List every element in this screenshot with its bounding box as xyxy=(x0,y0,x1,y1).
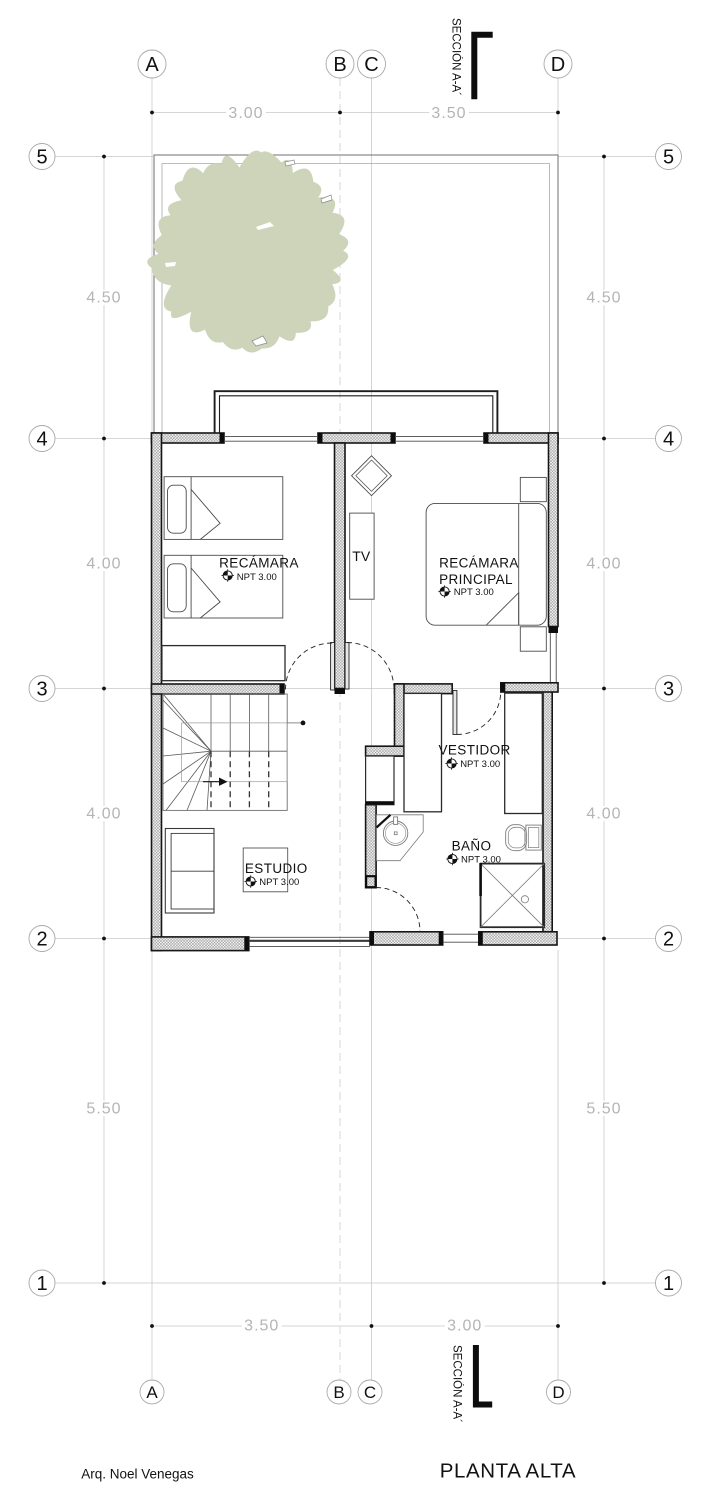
svg-text:PLANTA ALTA: PLANTA ALTA xyxy=(440,1460,577,1483)
svg-text:4: 4 xyxy=(36,429,47,451)
svg-text:3: 3 xyxy=(36,679,47,701)
svg-text:4.00: 4.00 xyxy=(586,806,621,823)
svg-text:5.50: 5.50 xyxy=(86,1100,121,1117)
svg-text:4.00: 4.00 xyxy=(586,556,621,573)
svg-text:NPT 3.00: NPT 3.00 xyxy=(460,759,500,770)
svg-text:BAÑO: BAÑO xyxy=(452,839,492,854)
svg-text:VESTIDOR: VESTIDOR xyxy=(439,743,511,758)
svg-text:PRINCIPAL: PRINCIPAL xyxy=(439,572,513,587)
svg-text:3: 3 xyxy=(663,679,674,701)
svg-text:3.00: 3.00 xyxy=(228,105,263,122)
svg-text:ESTUDIO: ESTUDIO xyxy=(245,861,308,876)
svg-text:1: 1 xyxy=(36,1273,47,1295)
svg-text:4.50: 4.50 xyxy=(586,290,621,307)
svg-text:5.50: 5.50 xyxy=(586,1100,621,1117)
svg-text:SECCIÓN A-A´: SECCIÓN A-A´ xyxy=(451,1345,464,1423)
svg-text:NPT 3.00: NPT 3.00 xyxy=(454,587,494,598)
svg-text:SECCIÓN A-A´: SECCIÓN A-A´ xyxy=(450,18,463,96)
svg-text:C: C xyxy=(364,1383,376,1402)
svg-text:3.50: 3.50 xyxy=(431,105,466,122)
svg-text:D: D xyxy=(551,54,565,76)
svg-text:3.50: 3.50 xyxy=(244,1318,279,1335)
svg-text:1: 1 xyxy=(663,1273,674,1295)
svg-text:NPT 3.00: NPT 3.00 xyxy=(237,572,277,583)
svg-text:D: D xyxy=(552,1383,564,1402)
svg-text:3.00: 3.00 xyxy=(447,1318,482,1335)
svg-text:4.50: 4.50 xyxy=(86,290,121,307)
svg-text:4: 4 xyxy=(663,429,674,451)
svg-text:2: 2 xyxy=(36,929,47,951)
svg-text:5: 5 xyxy=(36,147,47,169)
svg-text:NPT 3.00: NPT 3.00 xyxy=(461,854,501,865)
svg-text:TV: TV xyxy=(352,548,371,564)
svg-text:2: 2 xyxy=(663,929,674,951)
svg-text:C: C xyxy=(364,54,378,76)
svg-text:B: B xyxy=(333,1383,344,1402)
svg-text:4.00: 4.00 xyxy=(86,556,121,573)
svg-text:B: B xyxy=(333,54,346,76)
svg-text:A: A xyxy=(146,1383,158,1402)
svg-text:Arq. Noel Venegas: Arq. Noel Venegas xyxy=(81,1467,194,1482)
svg-text:4.00: 4.00 xyxy=(86,806,121,823)
svg-text:RECÁMARA: RECÁMARA xyxy=(219,556,299,571)
svg-text:A: A xyxy=(145,54,159,76)
svg-text:NPT 3.00: NPT 3.00 xyxy=(259,877,299,888)
svg-text:5: 5 xyxy=(663,147,674,169)
svg-text:RECÁMARA: RECÁMARA xyxy=(439,556,519,571)
